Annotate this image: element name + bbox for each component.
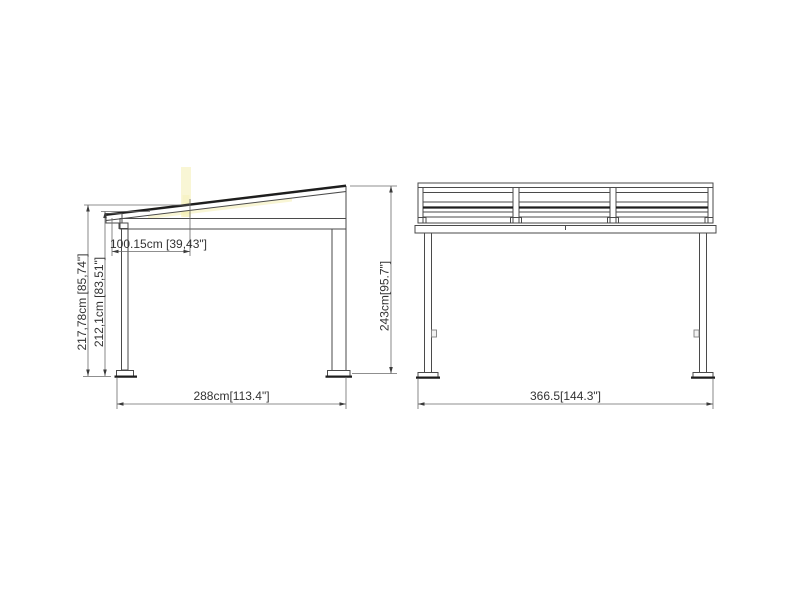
side-view: 217,78cm [85,74"] 212,1cm [83,51"] 100.1… bbox=[75, 167, 397, 409]
roof-top-edge bbox=[106, 186, 346, 215]
right-post-fitting bbox=[694, 330, 699, 337]
front-dimensions: 366.5[144.3"] bbox=[418, 379, 713, 409]
right-post-front bbox=[700, 233, 707, 373]
dim-label-right-height: 243cm[95.7"] bbox=[378, 261, 392, 331]
side-beam bbox=[120, 219, 346, 230]
front-view: 366.5[144.3"] bbox=[415, 183, 716, 409]
dim-label-overall-height: 217,78cm [85,74"] bbox=[75, 254, 89, 351]
dim-arrow bbox=[340, 402, 347, 406]
band-bracket bbox=[511, 218, 522, 224]
band-bracket bbox=[705, 218, 713, 224]
dim-arrow bbox=[86, 370, 90, 377]
left-post-fitting bbox=[432, 330, 437, 337]
right-foot-plate-front bbox=[693, 373, 713, 378]
dim-arrow bbox=[418, 402, 425, 406]
front-structure bbox=[415, 183, 716, 378]
sloped-roof-panel bbox=[106, 187, 346, 221]
left-post-front bbox=[425, 233, 432, 373]
dim-label-roof-projection: 100.15cm [39,43"] bbox=[110, 237, 207, 251]
dim-arrow bbox=[86, 205, 90, 212]
dim-label-post-height: 212,1cm [83,51"] bbox=[92, 257, 106, 347]
left-foot-plate-side bbox=[117, 371, 134, 377]
left-foot-plate-front bbox=[418, 373, 438, 378]
band-bracket bbox=[418, 218, 426, 224]
dim-arrow bbox=[389, 367, 393, 374]
side-structure bbox=[106, 186, 352, 377]
drawing-svg: 217,78cm [85,74"] 212,1cm [83,51"] 100.1… bbox=[0, 0, 800, 600]
right-foot-plate-side bbox=[328, 371, 351, 377]
dim-arrow bbox=[117, 402, 124, 406]
pergola-technical-drawing: 217,78cm [85,74"] 212,1cm [83,51"] 100.1… bbox=[0, 0, 800, 600]
band-bracket bbox=[608, 218, 619, 224]
dim-label-side-width: 288cm[113.4"] bbox=[193, 389, 269, 403]
dim-arrow bbox=[103, 370, 107, 377]
dim-label-front-width: 366.5[144.3"] bbox=[530, 389, 601, 403]
dim-arrow bbox=[389, 186, 393, 193]
dim-arrow bbox=[707, 402, 714, 406]
